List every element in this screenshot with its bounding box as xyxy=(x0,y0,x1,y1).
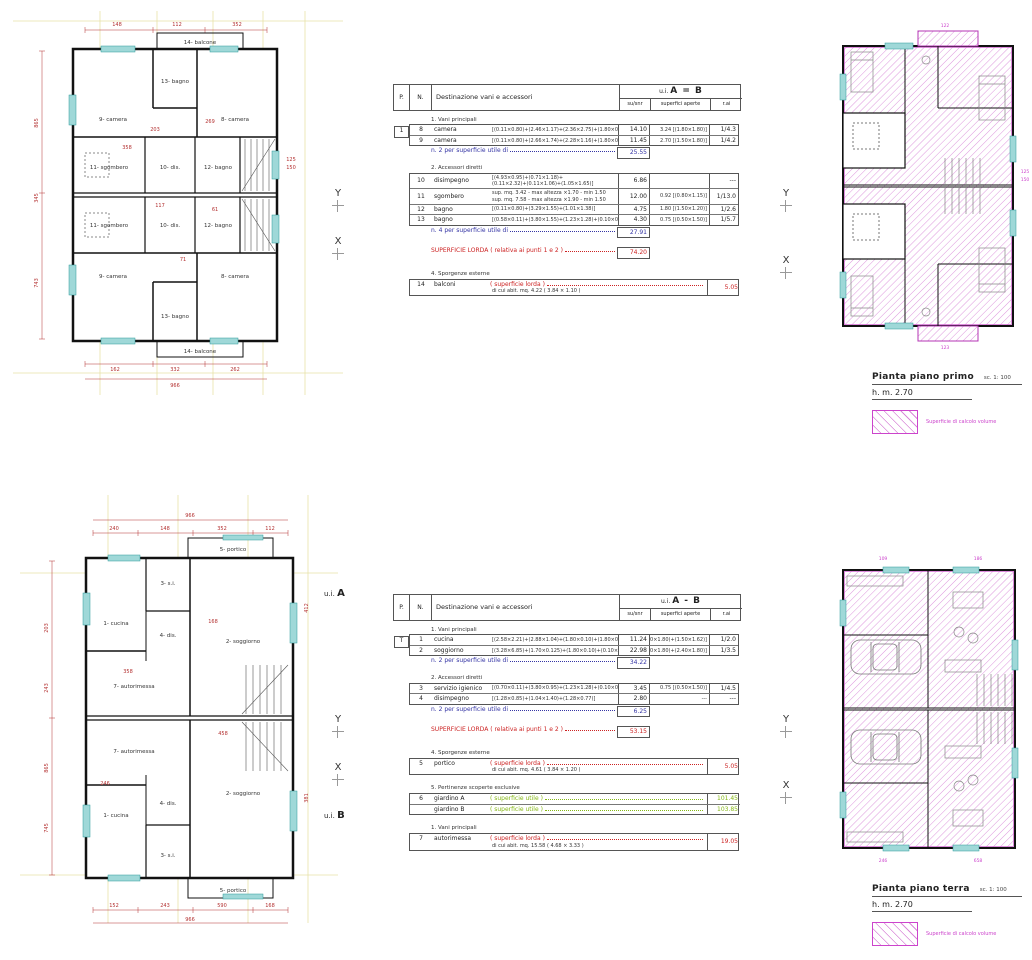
group-heading: 2. Accessori diretti xyxy=(431,165,741,172)
unit-a-label: u.i. A xyxy=(324,588,345,599)
svg-text:1- cucina: 1- cucina xyxy=(103,813,128,819)
table-row: 4 disimpegno [(1.28×0.85)+(1.04×1.40)+(1… xyxy=(410,693,738,704)
axis-marker-x: X xyxy=(778,255,794,279)
floor-height: h. m. 2.70 xyxy=(872,897,972,912)
row-group: 5 portico ( superficie lorda ) di cui ab… xyxy=(409,758,739,776)
floor-id: T xyxy=(394,636,409,648)
survey-cross-icon xyxy=(780,267,792,279)
gross-area-row: SUPERFICIE LORDA ( relativa ai punti 1 e… xyxy=(409,247,741,259)
group-heading: 1. Vani principali xyxy=(431,825,741,832)
svg-text:14- balcone: 14- balcone xyxy=(184,349,217,355)
svg-text:4- dis.: 4- dis. xyxy=(160,801,177,807)
svg-text:203: 203 xyxy=(44,623,50,633)
table-row: 10 disimpegno [(4.93×0.95)+(0.71×1.18)+ … xyxy=(410,174,738,189)
first-floor-calc-plan: 122 123 125 150 xyxy=(833,18,1032,350)
svg-text:745: 745 xyxy=(44,823,50,833)
hatch-legend-swatch xyxy=(872,410,918,434)
plan-title: Pianta piano primo xyxy=(872,372,974,382)
svg-text:150: 150 xyxy=(286,165,296,171)
dotted-leader xyxy=(545,810,703,811)
hatch-legend-label: Superficie di calcolo volume xyxy=(926,419,996,425)
balcony-top xyxy=(918,31,978,46)
svg-text:246: 246 xyxy=(879,858,888,864)
svg-text:123: 123 xyxy=(941,345,950,350)
svg-text:11- sgombero: 11- sgombero xyxy=(90,165,129,171)
dotted-leader xyxy=(547,285,703,286)
svg-text:122: 122 xyxy=(941,23,950,29)
row-group: T 1 cucina [(2.58×2.21)+(2.88×1.04)+(1.8… xyxy=(409,634,739,656)
svg-text:12- bagno: 12- bagno xyxy=(204,223,233,229)
svg-text:2- soggiorno: 2- soggiorno xyxy=(226,639,261,645)
svg-text:150: 150 xyxy=(1021,177,1030,183)
svg-text:112: 112 xyxy=(172,22,182,28)
axis-marker-x: X xyxy=(330,762,346,786)
hatch-legend: Superficie di calcolo volume xyxy=(872,922,1022,946)
svg-text:148: 148 xyxy=(160,526,170,532)
axis-marker-x: X xyxy=(778,780,794,804)
table-row: 3 servizio igienico [(0.70×0.11)+(3.80×0… xyxy=(410,684,738,694)
svg-text:243: 243 xyxy=(44,683,50,693)
svg-text:112: 112 xyxy=(265,526,275,532)
group-heading: 5. Pertinenze scoperte esclusive xyxy=(431,785,741,792)
svg-text:148: 148 xyxy=(112,22,122,28)
svg-text:168: 168 xyxy=(265,903,275,909)
col-p: P. xyxy=(394,85,410,110)
survey-cross-icon xyxy=(332,200,344,212)
svg-text:3- s.i.: 3- s.i. xyxy=(160,853,175,859)
svg-text:10- dis.: 10- dis. xyxy=(160,223,181,229)
svg-text:381: 381 xyxy=(304,793,310,803)
svg-text:458: 458 xyxy=(218,731,228,737)
survey-cross-icon xyxy=(332,774,344,786)
svg-text:5- portico: 5- portico xyxy=(220,888,247,894)
table-header: P. N. Destinazione vani e accessori u.i.… xyxy=(393,84,741,111)
svg-text:966: 966 xyxy=(185,513,195,519)
row-group: 14 balconi ( superficie lorda ) di cui a… xyxy=(409,279,739,297)
svg-text:352: 352 xyxy=(217,526,227,532)
plan-scale: sc. 1: 100 xyxy=(980,887,1007,893)
first-floor-plan-drawing: 14- balcone 13- bagno 9- camera 8- camer… xyxy=(5,3,350,403)
svg-text:2- soggiorno: 2- soggiorno xyxy=(226,791,261,797)
survey-cross-icon xyxy=(332,248,344,260)
table-row: 2 soggiorno [(3.28×6.85)+(1.70×0.125)+(1… xyxy=(410,645,738,656)
svg-text:358: 358 xyxy=(123,669,133,675)
svg-text:152: 152 xyxy=(109,903,119,909)
axis-marker-y: Y xyxy=(778,188,794,212)
area-table-ground-floor: P. N. Destinazione vani e accessori u.i.… xyxy=(393,594,741,851)
svg-text:117: 117 xyxy=(155,203,165,209)
plan-scale: sc. 1: 100 xyxy=(984,375,1011,381)
axis-marker-y: Y xyxy=(330,188,346,212)
row-group: 7 autorimessa ( superficie lorda ) di cu… xyxy=(409,833,739,851)
group-heading: 4. Sporgenze esterne xyxy=(431,750,741,757)
subtotal-row: n. 4 per superficie utile di 27.91 xyxy=(409,227,741,239)
subtotal-row: n. 2 per superficie utile di 6.25 xyxy=(409,706,741,718)
row-group: 3 servizio igienico [(0.70×0.11)+(3.80×0… xyxy=(409,683,739,705)
svg-text:11- sgombero: 11- sgombero xyxy=(90,223,129,229)
survey-cross-icon xyxy=(780,726,792,738)
svg-text:9- camera: 9- camera xyxy=(99,274,127,280)
survey-cross-icon xyxy=(780,792,792,804)
floor-height: h. m. 2.70 xyxy=(872,385,972,400)
svg-text:966: 966 xyxy=(185,917,195,923)
dotted-leader xyxy=(510,661,615,662)
survey-cross-icon xyxy=(332,726,344,738)
col-n: N. xyxy=(410,85,432,110)
subtotal-row: n. 2 per superficie utile di 34.22 xyxy=(409,657,741,669)
svg-text:5- portico: 5- portico xyxy=(220,547,247,553)
svg-text:3- s.i.: 3- s.i. xyxy=(160,581,175,587)
dotted-leader xyxy=(510,151,615,152)
building-walls xyxy=(86,538,293,898)
group-heading: 1. Vani principali xyxy=(431,627,741,634)
table-row: 13 bagno [(0.58×0.11)+(3.80×1.55)+(1.23×… xyxy=(410,214,738,225)
axis-marker-y: Y xyxy=(330,714,346,738)
row-group: 6 giardino A ( superficie utile ) 101.45… xyxy=(409,793,739,815)
svg-text:4- dis.: 4- dis. xyxy=(160,633,177,639)
axis-marker-x: X xyxy=(330,236,346,260)
svg-text:162: 162 xyxy=(110,367,120,373)
svg-text:269: 269 xyxy=(205,119,215,125)
svg-text:262: 262 xyxy=(230,367,240,373)
svg-text:9- camera: 9- camera xyxy=(99,117,127,123)
svg-text:7- autorimessa: 7- autorimessa xyxy=(113,684,154,690)
svg-text:71: 71 xyxy=(180,257,186,263)
svg-text:358: 358 xyxy=(122,145,132,151)
svg-text:168: 168 xyxy=(208,619,218,625)
svg-text:658: 658 xyxy=(974,858,983,864)
table-row: 11 sgombero sup. mq. 3.42 - max altezza … xyxy=(410,188,738,204)
table-header: P. N. Destinazione vani e accessori u.i.… xyxy=(393,594,741,621)
axis-marker-y: Y xyxy=(778,714,794,738)
dotted-leader xyxy=(547,839,703,840)
subtotal-row: n. 2 per superficie utile di 25.55 xyxy=(409,147,741,159)
unit-ids: A - B xyxy=(672,596,701,606)
unit-ids: A = B xyxy=(670,86,703,96)
svg-text:345: 345 xyxy=(34,193,40,203)
svg-text:14- balcone: 14- balcone xyxy=(184,40,217,46)
unit-b-label: u.i. B xyxy=(324,810,345,821)
hatch-legend-swatch xyxy=(872,922,918,946)
ground-floor-caption: Pianta piano terra sc. 1: 100 h. m. 2.70… xyxy=(872,884,1022,946)
svg-text:243: 243 xyxy=(160,903,170,909)
svg-text:8- camera: 8- camera xyxy=(221,274,249,280)
col-destinazione: Destinazione vani e accessori xyxy=(432,85,620,110)
group-heading: 1. Vani principali xyxy=(431,117,741,124)
svg-text:412: 412 xyxy=(304,603,310,613)
svg-text:61: 61 xyxy=(212,207,218,213)
floor-id: 1 xyxy=(394,126,409,138)
col-values: u.i. A = B su/snr superfici aperte r.ai xyxy=(620,85,742,110)
svg-text:590: 590 xyxy=(217,903,227,909)
hatch-legend-label: Superficie di calcolo volume xyxy=(926,931,996,937)
ground-floor-calc-plan: 109 186 246 658 xyxy=(833,540,1032,872)
svg-text:109: 109 xyxy=(879,556,888,562)
svg-text:966: 966 xyxy=(170,383,180,389)
survey-cross-icon xyxy=(780,200,792,212)
table-row: 12 bagno [(0.11×0.80)+(3.29×1.55)+(1.01×… xyxy=(410,204,738,215)
svg-text:125: 125 xyxy=(286,157,296,163)
svg-text:240: 240 xyxy=(109,526,119,532)
dotted-leader xyxy=(510,231,615,232)
table-row: 8 camera [(0.11×0.80)+(2.46×1.17)+(2.36×… xyxy=(410,125,738,135)
svg-text:12- bagno: 12- bagno xyxy=(204,165,233,171)
dotted-leader xyxy=(545,799,703,800)
svg-text:186: 186 xyxy=(974,556,983,562)
hatch-legend: Superficie di calcolo volume xyxy=(872,410,1022,434)
ground-floor-plan-drawing: 5- portico 3- s.i. 1- cucina 4- dis. 2- … xyxy=(8,483,348,931)
area-table-first-floor: P. N. Destinazione vani e accessori u.i.… xyxy=(393,84,741,296)
building-outline xyxy=(843,570,1015,848)
dotted-leader xyxy=(565,251,615,252)
balcony-bottom xyxy=(918,326,978,341)
svg-text:125: 125 xyxy=(1021,169,1030,175)
svg-text:865: 865 xyxy=(44,763,50,773)
svg-text:7- autorimessa: 7- autorimessa xyxy=(113,749,154,755)
plan-title: Pianta piano terra xyxy=(872,884,970,894)
row-group: 10 disimpegno [(4.93×0.95)+(0.71×1.18)+ … xyxy=(409,173,739,226)
svg-text:865: 865 xyxy=(34,118,40,128)
svg-text:332: 332 xyxy=(170,367,180,373)
svg-text:743: 743 xyxy=(34,278,40,288)
dotted-leader xyxy=(510,710,615,711)
svg-text:13- bagno: 13- bagno xyxy=(161,79,190,85)
svg-text:1- cucina: 1- cucina xyxy=(103,621,128,627)
table-row: 9 camera [(0.11×0.80)+(2.66×1.74)+(2.28×… xyxy=(410,135,738,146)
dotted-leader xyxy=(565,730,615,731)
svg-text:8- camera: 8- camera xyxy=(221,117,249,123)
row-group: 1 8 camera [(0.11×0.80)+(2.46×1.17)+(2.3… xyxy=(409,124,739,146)
group-heading: 4. Sporgenze esterne xyxy=(431,271,741,278)
svg-text:10- dis.: 10- dis. xyxy=(160,165,181,171)
group-heading: 2. Accessori diretti xyxy=(431,675,741,682)
first-floor-caption: Pianta piano primo sc. 1: 100 h. m. 2.70… xyxy=(872,372,1022,434)
svg-text:203: 203 xyxy=(150,127,160,133)
gross-area-row: SUPERFICIE LORDA ( relativa ai punti 1 e… xyxy=(409,726,741,738)
dotted-leader xyxy=(547,764,703,765)
table-row: 1 cucina [(2.58×2.21)+(2.88×1.04)+(1.80×… xyxy=(410,635,738,645)
svg-text:352: 352 xyxy=(232,22,242,28)
svg-text:246: 246 xyxy=(100,781,110,787)
svg-text:13- bagno: 13- bagno xyxy=(161,314,190,320)
